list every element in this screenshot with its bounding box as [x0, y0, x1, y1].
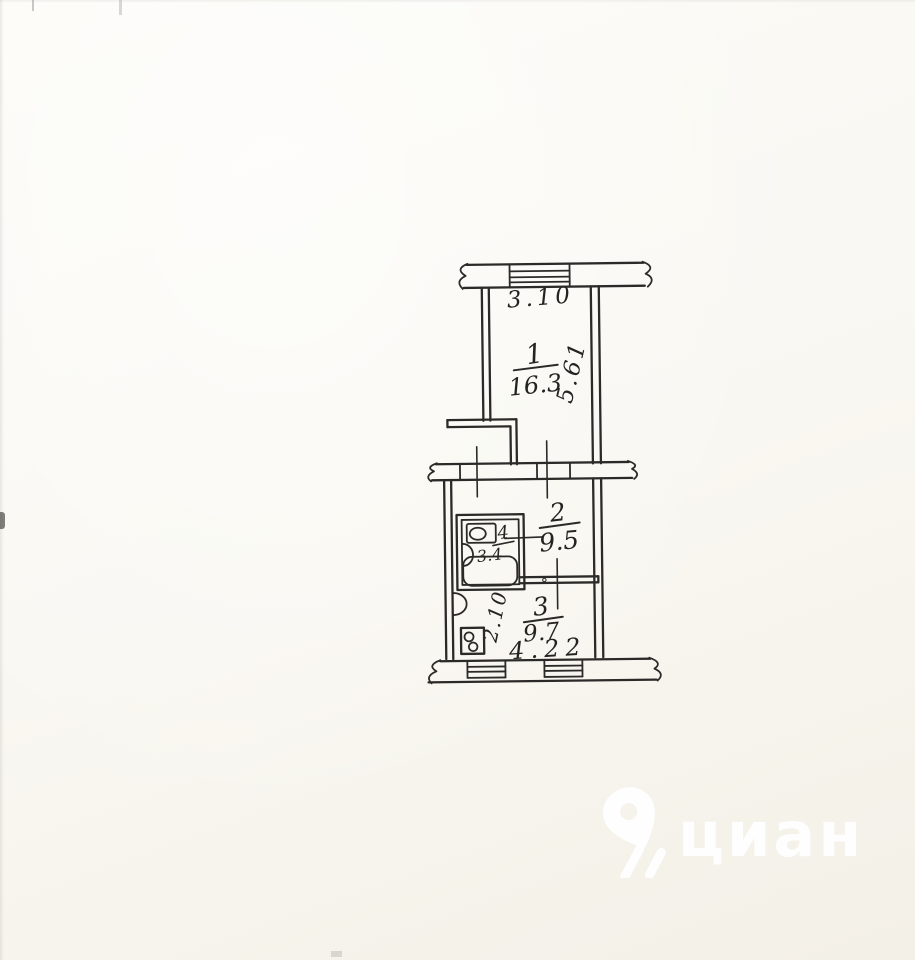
wall-break-icon — [649, 658, 661, 681]
toilet-icon — [467, 524, 496, 543]
room-2-3-partition — [519, 558, 599, 609]
wall-break-icon — [428, 463, 437, 481]
wall-break-icon — [628, 461, 637, 479]
wall-break-icon — [459, 264, 468, 289]
bathroom-area: 3.4 — [476, 544, 503, 566]
dimension-tick — [477, 447, 478, 497]
bottom-wall — [428, 658, 661, 684]
scan-artifact — [331, 951, 342, 957]
room-2-area: 9.5 — [538, 525, 580, 558]
middle-wall — [428, 440, 638, 500]
label-leader-line — [505, 537, 543, 538]
floorplan-drawing: 3.10 1 16.3 5.61 — [0, 0, 915, 960]
window-icon — [467, 660, 505, 677]
room-2-number: 2 — [547, 497, 567, 528]
bathroom-number: 4 — [495, 522, 510, 544]
scan-artifact — [32, 0, 34, 11]
dimension-tick — [557, 559, 558, 609]
scan-artifact — [119, 0, 122, 15]
bathroom: 4 3.4 — [457, 514, 544, 590]
dimension-right-height: 5.61 — [552, 338, 592, 406]
dimension-top-width: 3.10 — [506, 282, 575, 313]
scan-artifact — [0, 512, 5, 529]
room-3-number: 3 — [531, 591, 550, 622]
room-2-label: 2 9.5 — [538, 497, 581, 558]
scan-edge-shadow — [0, 0, 4, 960]
scan-edge-shadow — [0, 0, 915, 3]
dimension-hall-height: 2.10 — [477, 588, 512, 645]
wall-break-icon — [429, 660, 441, 683]
wall-break-icon — [642, 262, 651, 287]
dimension-tick — [547, 441, 548, 498]
door-swing-icon — [453, 593, 466, 615]
floorplan-scan: 3.10 1 16.3 5.61 — [0, 0, 915, 960]
